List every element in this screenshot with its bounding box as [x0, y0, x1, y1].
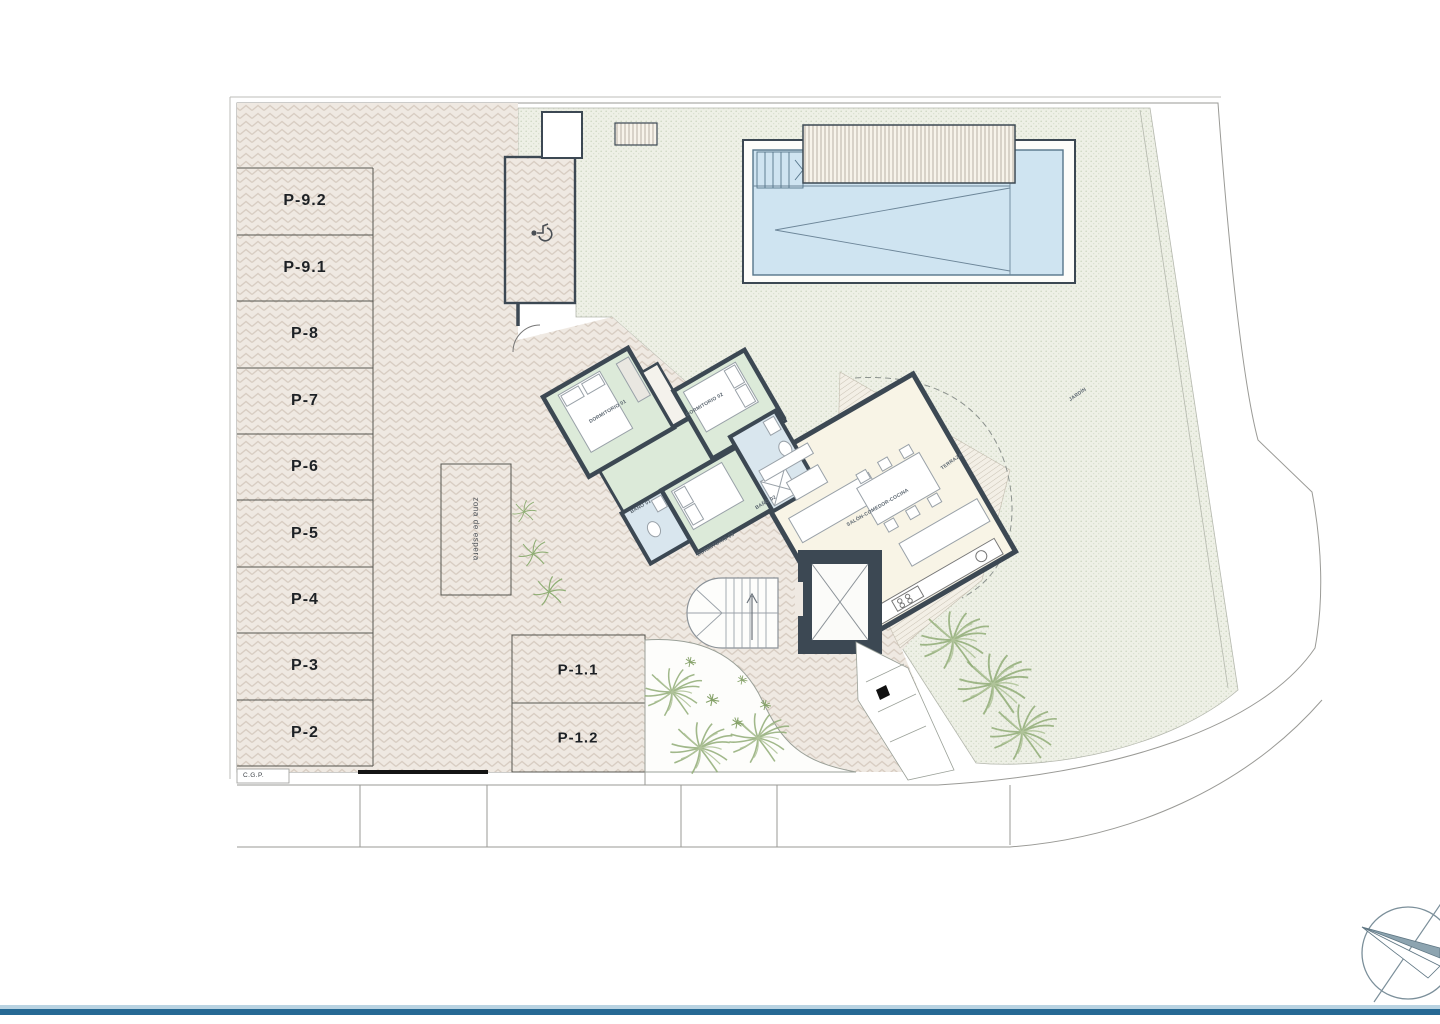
site-plan-drawing [0, 0, 1440, 1024]
parking-stall-label: P-1.2 [518, 730, 638, 747]
boundary-thick-line [358, 770, 488, 774]
parking-stall-label: P-2 [245, 724, 365, 742]
parking-stall-label: P-5 [245, 525, 365, 543]
bottom-bar-dark [0, 1009, 1440, 1015]
parking-stall-label: P-3 [245, 657, 365, 675]
compass-rose-icon [1362, 902, 1440, 1002]
parking-stall-label: P-7 [245, 392, 365, 410]
parking-stall-label: P-1.1 [518, 662, 638, 679]
waiting-zone-label: zona de espera [472, 497, 481, 561]
parking-stall-label: P-6 [245, 458, 365, 476]
top-white-structure [542, 112, 582, 158]
staircase [687, 578, 778, 648]
elevator-shaft [795, 550, 882, 654]
cgp-label: C.G.P. [243, 772, 264, 779]
parking-stall-label: P-9.1 [245, 259, 365, 277]
parking-stall-label: P-8 [245, 325, 365, 343]
parking-stall-label: P-9.2 [245, 192, 365, 210]
top-striped-structure [615, 123, 657, 145]
bottom-bar-light [0, 1005, 1440, 1009]
front-parking-block [512, 635, 645, 772]
parking-stall-label: P-4 [245, 591, 365, 609]
pergola [803, 125, 1015, 183]
site-plan-page: P-9.2 P-9.1 P-8 P-7 P-6 P-5 P-4 P-3 P-2 … [0, 0, 1440, 1024]
